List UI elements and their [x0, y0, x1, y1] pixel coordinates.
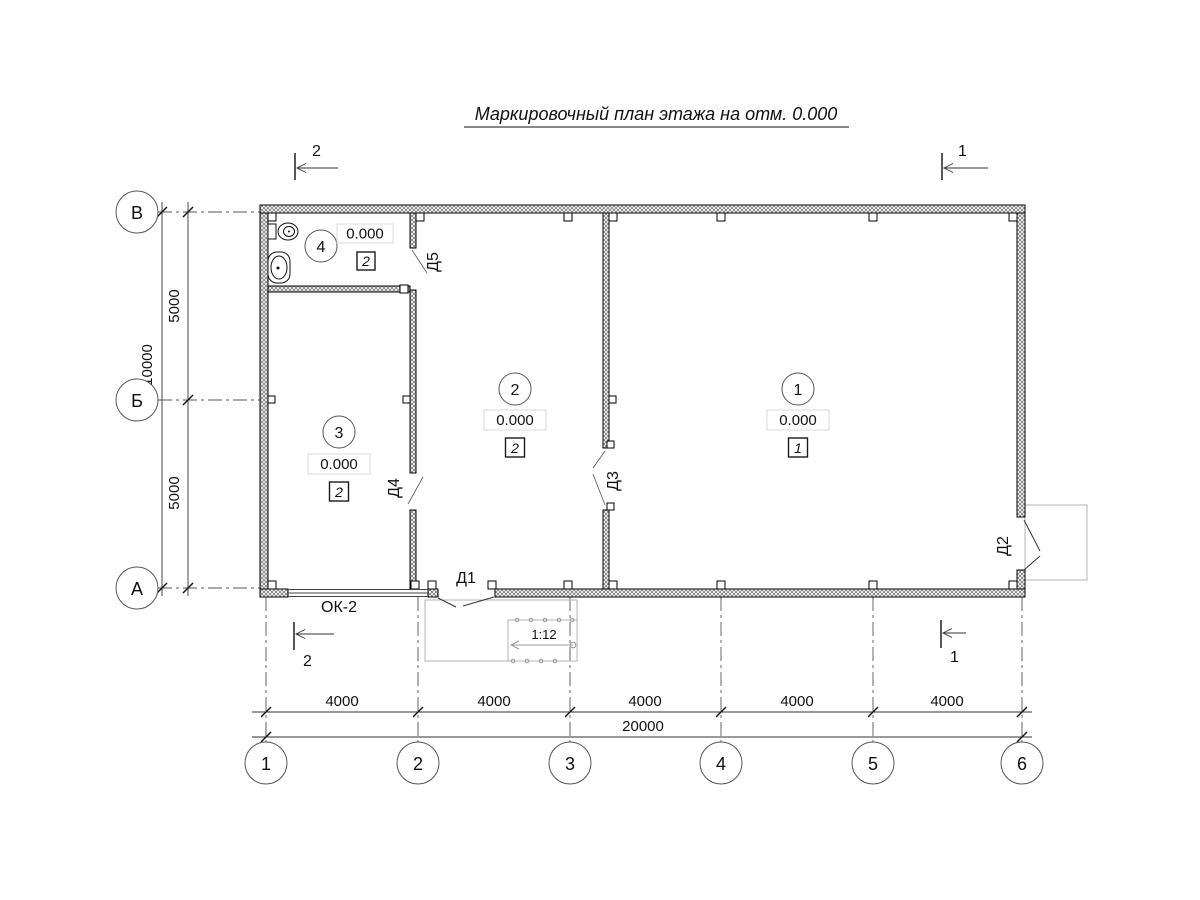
bottom-dimension-lines: 4000 4000 4000 4000 4000 20000 — [252, 693, 1032, 742]
room-2-floor-type: 2 — [510, 440, 519, 456]
dim-bottom-segment-2: 4000 — [477, 693, 510, 710]
door-d2-leaf — [1024, 556, 1040, 570]
ramp-slope-label: 1:12 — [531, 627, 556, 642]
room-4-marker: 4 0.000 2 — [305, 224, 393, 270]
section-1-label: 1 — [958, 143, 967, 160]
door-label-d3: Д3 — [605, 471, 622, 491]
room-2-marker: 2 0.000 2 — [484, 373, 546, 457]
axis-row-b-label: Б — [131, 391, 143, 411]
entrance-porch: 1:12 — [425, 600, 577, 663]
door-d1-leaf — [438, 598, 456, 607]
axis-col-1-label: 1 — [261, 754, 271, 774]
partition-a-middle — [410, 290, 416, 473]
wall-bottom-stub — [428, 589, 438, 597]
plan-svg: Маркировочный план этажа на отм. 0.000 1… — [0, 0, 1200, 900]
wall-bottom-left — [260, 589, 288, 597]
section-1-label: 1 — [950, 649, 959, 666]
dim-left-segment-2: 5000 — [166, 476, 183, 509]
dim-bottom-segment-5: 4000 — [930, 693, 963, 710]
room-3-elevation: 0.000 — [320, 456, 358, 473]
axis-col-6-label: 6 — [1017, 754, 1027, 774]
room-1-number: 1 — [794, 382, 803, 399]
section-mark-1-bottom: 1 — [941, 620, 966, 666]
dim-bottom-segment-4: 4000 — [780, 693, 813, 710]
room-4-floor-type: 2 — [361, 253, 370, 269]
axis-col-4-label: 4 — [716, 754, 726, 774]
room-4-elevation: 0.000 — [346, 226, 384, 243]
door-d4-leader — [408, 477, 423, 504]
page-title: Маркировочный план этажа на отм. 0.000 — [475, 104, 838, 124]
door-d2-leaf — [1024, 520, 1040, 551]
wall-right-lower — [1017, 570, 1025, 589]
row-axis-bubbles: В Б А — [116, 191, 158, 609]
room-3-number: 3 — [335, 425, 344, 442]
dim-bottom-total: 20000 — [622, 718, 664, 735]
room-4-number: 4 — [317, 239, 326, 256]
room-1-floor-type: 1 — [794, 440, 802, 456]
wall-top — [260, 205, 1025, 213]
axis-col-3-label: 3 — [565, 754, 575, 774]
section-mark-1-top: 1 — [942, 143, 988, 180]
room-2-elevation: 0.000 — [496, 412, 534, 429]
section-2-label: 2 — [312, 143, 321, 160]
axis-col-5-label: 5 — [868, 754, 878, 774]
dim-left-segment-1: 5000 — [166, 289, 183, 322]
door-label-d5: Д5 — [425, 252, 442, 272]
section-mark-2-top: 2 — [295, 143, 338, 180]
dim-bottom-segment-3: 4000 — [628, 693, 661, 710]
axis-row-v-label: В — [131, 203, 143, 223]
partition-a-lower — [410, 510, 416, 589]
side-porch-slab — [1025, 505, 1087, 580]
column-markers — [268, 213, 1017, 589]
door-d3-leaf — [593, 451, 605, 468]
section-mark-2-bottom: 2 — [294, 622, 334, 670]
door-d3-leaf — [593, 474, 605, 505]
door-label-d4: Д4 — [386, 478, 403, 498]
door-label-d2: Д2 — [995, 536, 1012, 556]
room-1-marker: 1 0.000 1 — [767, 373, 829, 457]
partition-b-upper — [603, 213, 609, 448]
door-label-d1: Д1 — [456, 570, 476, 587]
window-ok2 — [288, 590, 428, 597]
section-2-label: 2 — [303, 653, 312, 670]
toilet-icon — [268, 223, 298, 240]
room-3-marker: 3 0.000 2 — [308, 416, 370, 501]
room-2-number: 2 — [511, 382, 520, 399]
axis-row-a-label: А — [131, 579, 143, 599]
floor-plan-drawing: Маркировочный план этажа на отм. 0.000 1… — [0, 0, 1200, 900]
partition-b-lower — [603, 510, 609, 589]
window-label: ОК-2 — [321, 599, 357, 616]
wall-bottom-right — [495, 589, 1025, 597]
partition-wc — [268, 286, 410, 292]
col-axis-bubbles: 1 2 3 4 5 6 — [245, 742, 1043, 784]
room-1-elevation: 0.000 — [779, 412, 817, 429]
door-d1-leaf — [463, 597, 494, 606]
sink-icon — [268, 252, 290, 283]
room-3-floor-type: 2 — [334, 484, 343, 500]
partition-a-upper — [410, 213, 416, 248]
wall-left — [260, 213, 268, 589]
dim-bottom-segment-1: 4000 — [325, 693, 358, 710]
wall-right-upper — [1017, 213, 1025, 517]
axis-col-2-label: 2 — [413, 754, 423, 774]
